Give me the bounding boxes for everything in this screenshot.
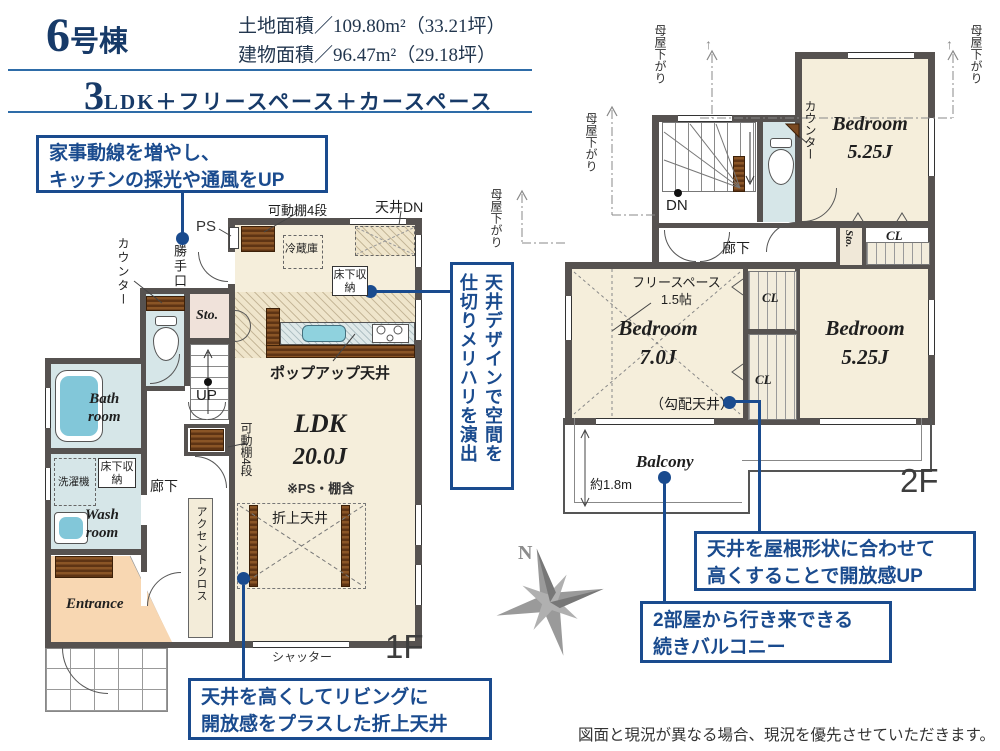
disclaimer-text: 図面と現況が異なる場合、現況を優先させていただきます。	[490, 723, 995, 745]
callout-balcony-line	[663, 483, 666, 602]
f1-bath-l1: Bath	[89, 391, 119, 407]
callout-kitchen-dot	[176, 232, 189, 245]
f1-ceiling-dn-label: 天井DN	[375, 197, 423, 217]
f1-wash-door-gap	[141, 495, 147, 525]
f2-bedroom1-left-wall	[795, 122, 802, 228]
header-rule-bottom	[8, 111, 532, 113]
f1-shoe-shelf	[55, 556, 113, 578]
building-number: 6	[46, 9, 70, 62]
f1-counter-front	[266, 345, 415, 358]
f1-backdoor-gap	[228, 252, 235, 284]
f2-moya-arrow-1: ↑	[705, 36, 712, 52]
f1-underfloor-storage-kitchen-label: 床下収納	[334, 269, 367, 294]
f1-window-ldk-bottom	[253, 641, 349, 648]
f2-window-bedroom1-top	[848, 52, 914, 59]
f2-balcony-step	[748, 470, 750, 514]
f1-toilet-bottom-wall	[146, 386, 185, 391]
f1-window-right-3	[415, 505, 422, 545]
f2-freespace-label: フリースペース 1.5帖	[632, 274, 721, 308]
f2-freespace-l2: 1.5帖	[661, 292, 692, 307]
callout-oriage-dot	[237, 572, 250, 585]
building-suffix: 号棟	[70, 26, 128, 58]
f1-sto-label: Sto.	[196, 308, 218, 324]
land-area: 土地面積／109.80m²（33.21坪）	[238, 12, 505, 41]
f1-up-dot	[204, 378, 212, 386]
callout-roof-l1: 天井を屋根形状に合わせて	[707, 537, 963, 564]
f2-bedroom1-size: 5.25J	[848, 141, 893, 163]
f1-wash-l1: Wash	[85, 507, 119, 523]
callout-oriage-l1: 天井を高くしてリビングに	[201, 685, 479, 712]
callout-kitchen-l1: 家事動線を増やし、	[49, 141, 315, 168]
f1-fridge-label: 冷蔵庫	[285, 240, 318, 256]
callout-balcony-l2: 続きバルコニー	[653, 635, 879, 662]
f1-shelf-label: 可動棚4段	[268, 200, 327, 219]
callout-ceiling-line	[376, 290, 452, 293]
f2-floor-label: 2F	[900, 462, 939, 500]
f2-sto-label: Sto.	[843, 230, 855, 247]
f2-stair-rail	[733, 156, 745, 192]
callout-oriage-l2: 開放感をプラスした折上天井	[201, 712, 479, 739]
f1-ps-shaft	[229, 227, 239, 249]
f2-balcony-inner-right	[742, 418, 922, 461]
f2-slope-label: （勾配天井）	[650, 394, 734, 414]
f1-kitchen-shelf	[241, 226, 275, 252]
f1-underfloor-storage-wash-label: 床下収納	[101, 461, 134, 486]
callout-oriage-line	[242, 585, 245, 678]
f1-floor-label: 1F	[385, 628, 424, 666]
area-info: 土地面積／109.80m²（33.21坪） 建物面積／96.47m²（29.18…	[238, 12, 505, 70]
f1-underfloor-storage-wash: 床下収納	[98, 458, 136, 488]
compass-rose-icon	[479, 528, 620, 672]
f2-cl-mid-top-label: CL	[762, 290, 779, 306]
f1-wash-label: Washroom	[85, 506, 119, 542]
f2-bedroom1-label: Bedroom 5.25J	[815, 110, 925, 166]
f2-freespace-l1: フリースペース	[632, 275, 721, 290]
f1-oriage-beam-right	[341, 505, 350, 587]
f1-entrance-door-gap	[141, 572, 147, 606]
callout-ceiling-l2: 仕切りメリハリを演出	[455, 273, 480, 479]
f1-wash-l2: room	[86, 525, 119, 541]
f1-underfloor-storage-kitchen: 床下収納	[332, 266, 368, 296]
f1-counter-label: カウンター	[115, 237, 132, 307]
callout-kitchen-l2: キッチンの採光や通風をUP	[49, 168, 315, 195]
f2-bedroom3-name: Bedroom	[825, 316, 904, 340]
f2-moya-label-1: 母屋下がり	[652, 24, 669, 84]
f1-hall-label: 廊下	[150, 476, 178, 496]
compass: N	[492, 540, 607, 660]
f1-entrance-label: Entrance	[66, 596, 124, 613]
f2-window-bedroom1-right	[928, 118, 935, 176]
f1-backdoor-label: 勝手口	[170, 244, 189, 289]
f1-stove	[372, 324, 409, 343]
f2-cl-top	[866, 242, 930, 265]
f2-dn-dot	[674, 189, 682, 197]
callout-roof-l2: 高くすることで開放感UP	[707, 564, 963, 591]
callout-kitchen: 家事動線を増やし、 キッチンの採光や通風をUP	[36, 135, 328, 193]
building-title: 6号棟	[46, 8, 128, 63]
f1-ldk-shelf-label: 可動棚4段	[238, 422, 255, 477]
f2-bedroom2-name: Bedroom	[618, 316, 697, 340]
f1-toilet-counter	[146, 296, 185, 311]
f2-bedroom1-name: Bedroom	[832, 113, 908, 135]
f2-bedroom3-label: Bedroom 5.25J	[806, 314, 924, 372]
f2-toilet-tank	[770, 138, 792, 148]
f2-moya-label-4: 母屋下がり	[488, 188, 505, 248]
f2-window-stairs-top	[678, 115, 732, 122]
f1-ldk-size: 20.0J	[293, 444, 347, 470]
f1-window-bath-left	[45, 388, 51, 428]
f2-cl-mid-bottom-label: CL	[755, 372, 772, 388]
callout-balcony-l1: 2部屋から行き来できる	[653, 608, 879, 635]
f1-up-label: UP	[196, 387, 217, 404]
f1-window-right-2	[415, 300, 422, 340]
f1-ldk-closet-shelf	[190, 429, 224, 451]
f2-balcony-label: Balcony	[636, 452, 694, 472]
callout-roof: 天井を屋根形状に合わせて 高くすることで開放感UP	[694, 531, 976, 591]
f2-bedroom2-size: 7.0J	[640, 345, 677, 369]
f1-ldk-note: ※PS・棚含	[287, 478, 354, 497]
f2-dn-label: DN	[666, 197, 688, 214]
f2-moya-arrow-2: ↑	[946, 36, 953, 52]
callout-oriage: 天井を高くしてリビングに 開放感をプラスした折上天井	[188, 678, 492, 740]
f1-wash-entrance-wall	[51, 549, 141, 555]
f2-bedroom3-size: 5.25J	[841, 345, 888, 369]
f2-toilet-wall	[757, 122, 763, 222]
f1-shutter-label: シャッター	[272, 648, 332, 665]
f1-bath-l2: room	[88, 409, 121, 425]
f2-cl-top-label: CL	[886, 228, 903, 244]
f1-ps-label: PS	[196, 218, 216, 235]
f1-kitchen-sink	[302, 325, 346, 342]
f2-window-bedroom3-right	[928, 300, 935, 355]
f1-ldk-label: LDK 20.0J	[255, 408, 385, 473]
f1-ceiling-dn-area	[355, 226, 415, 256]
callout-ceiling: 天井デザインで空間を 仕切りメリハリを演出	[450, 262, 514, 490]
f1-backdoor-arc	[198, 252, 228, 282]
f1-window-right-4	[415, 565, 422, 605]
f1-oriage-beam-left	[249, 505, 258, 587]
f1-bath-label: Bathroom	[88, 390, 121, 426]
f1-toilet-tank	[155, 316, 177, 326]
header-rule-top	[8, 69, 532, 71]
callout-balcony: 2部屋から行き来できる 続きバルコニー	[640, 601, 892, 663]
f2-moya-label-3: 母屋下がり	[583, 112, 600, 172]
floorplan-page: 6号棟 土地面積／109.80m²（33.21坪） 建物面積／96.47m²（2…	[0, 0, 1000, 751]
f2-balcony-dim: 約1.8m	[590, 474, 632, 493]
f1-wash-sink-bowl	[59, 517, 83, 539]
f1-popup-label: ポップアップ天井	[270, 362, 390, 383]
f1-window-kitchen-top	[350, 218, 406, 225]
callout-ceiling-l1: 天井デザインで空間を	[480, 273, 505, 479]
f2-bedroom2-label: Bedroom 7.0J	[598, 314, 718, 372]
f1-ldk-name: LDK	[294, 409, 346, 438]
f1-window-right-1	[415, 235, 422, 267]
f1-accent-label: アクセントクロス	[193, 506, 209, 602]
f1-window-wash-left	[45, 468, 51, 500]
f2-moya-label-2: 母屋下がり	[968, 24, 985, 84]
f1-oriage-label: 折上天井	[272, 508, 328, 528]
callout-roof-line-v	[758, 400, 761, 532]
f2-hall-label: 廊下	[722, 238, 750, 258]
f2-window-left	[565, 296, 572, 340]
building-area: 建物面積／96.47m²（29.18坪）	[238, 41, 505, 70]
f1-washer-label: 洗濯機	[58, 474, 90, 489]
